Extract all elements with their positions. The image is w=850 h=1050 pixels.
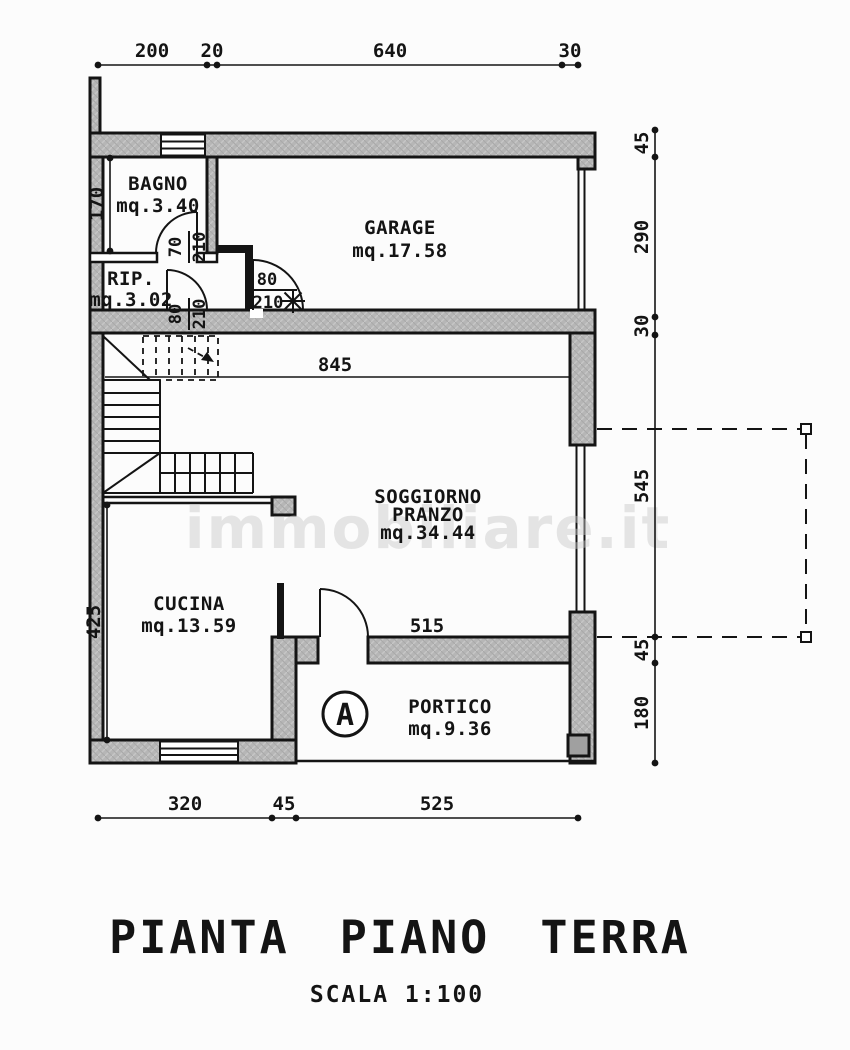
dim-bagno-170: 170 xyxy=(86,187,108,221)
pergola-post-bottom xyxy=(801,632,811,642)
room-area-bagno: mq.3.40 xyxy=(116,195,200,217)
dim-right-290: 290 xyxy=(631,220,653,254)
dim-top-20: 20 xyxy=(201,40,224,62)
dim-right-180: 180 xyxy=(631,696,653,730)
dimension-top: 200 20 640 30 xyxy=(95,40,582,68)
dim-top-200: 200 xyxy=(135,40,169,62)
dim-soggiorno-845: 845 xyxy=(318,354,352,376)
window-garage xyxy=(579,168,585,310)
dimension-right: 45 290 30 545 45 180 xyxy=(631,127,658,767)
section-marker-letter: A xyxy=(336,698,354,733)
svg-text:70: 70 xyxy=(166,237,186,257)
svg-text:210: 210 xyxy=(190,299,210,330)
stair-turn-line xyxy=(103,453,160,493)
dim-bottom-525: 525 xyxy=(420,793,454,815)
floor-plan-page: immobiliare.it 200 20 640 30 45 290 30 5… xyxy=(0,0,850,1050)
scale-label: SCALA 1:100 xyxy=(310,982,484,1008)
wall-corridor-top xyxy=(217,245,253,253)
dim-top-30: 30 xyxy=(559,40,582,62)
wall-top-stub xyxy=(90,78,100,135)
room-label-rip: RIP. xyxy=(107,268,155,290)
wall-right-stub xyxy=(578,157,595,169)
threshold-star-icon xyxy=(281,289,305,313)
room-area-rip: mq.3.02 xyxy=(89,289,173,311)
dim-cucina-425: 425 xyxy=(83,605,105,639)
room-area-soggiorno: mq.34.44 xyxy=(380,522,476,544)
room-label-bagno: BAGNO xyxy=(128,173,188,195)
dim-portico-515: 515 xyxy=(410,615,444,637)
dim-bottom-320: 320 xyxy=(168,793,202,815)
dim-right-45b: 45 xyxy=(631,639,653,662)
pergola-post-top xyxy=(801,424,811,434)
wall-bagno-bottom-left xyxy=(90,253,157,262)
room-label-cucina: CUCINA xyxy=(153,593,225,615)
page-title: PIANTA PIANO TERRA xyxy=(109,911,691,964)
room-area-garage: mq.17.58 xyxy=(352,240,448,262)
wall-cucina-right xyxy=(277,583,284,639)
room-area-portico: mq.9.36 xyxy=(408,718,492,740)
dim-right-30: 30 xyxy=(631,315,653,338)
room-area-cucina: mq.13.59 xyxy=(141,615,237,637)
stair-direction-arrow xyxy=(201,352,214,362)
dim-bottom-45: 45 xyxy=(273,793,296,815)
section-marker: A xyxy=(323,692,367,736)
window-bagno xyxy=(161,133,205,157)
svg-text:210: 210 xyxy=(253,293,284,313)
svg-text:210: 210 xyxy=(190,232,210,263)
svg-text:80: 80 xyxy=(257,270,277,290)
room-label-portico: PORTICO xyxy=(408,696,492,718)
dim-right-545: 545 xyxy=(631,469,653,503)
floor-plan-drawing: immobiliare.it 200 20 640 30 45 290 30 5… xyxy=(0,0,850,1050)
room-label-garage: GARAGE xyxy=(364,217,436,239)
wall-right-upper-pillar xyxy=(570,333,595,445)
window-cucina xyxy=(160,740,238,763)
dim-top-640: 640 xyxy=(373,40,407,62)
portico-pillar xyxy=(568,735,589,756)
door-label-bagno: 70 210 xyxy=(166,231,210,263)
wall-left-exterior xyxy=(90,133,103,763)
wall-portico-top xyxy=(368,637,570,663)
dim-right-45a: 45 xyxy=(631,132,653,155)
staircase xyxy=(103,336,253,493)
dimension-bottom: 320 45 525 xyxy=(95,793,582,821)
door-portico xyxy=(320,589,368,637)
